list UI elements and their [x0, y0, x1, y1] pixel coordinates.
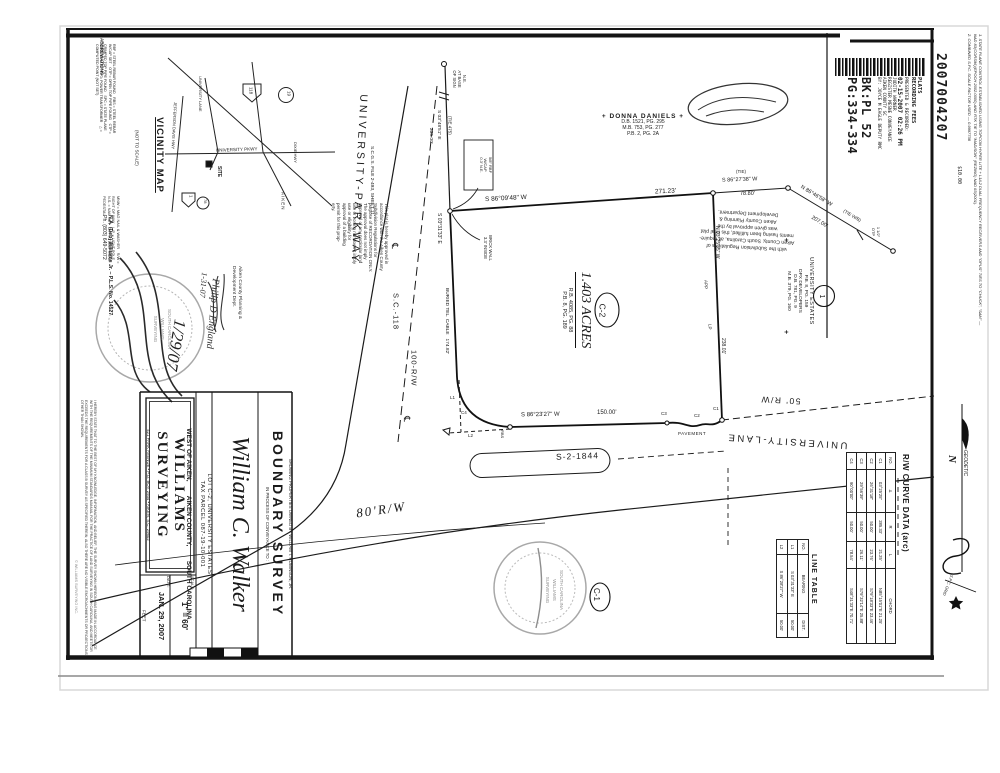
note-line: 3.3' INSIDE	[482, 224, 487, 272]
firm-name: WILLIAMS SURVEYING	[153, 403, 188, 567]
vicinity-site-marker	[206, 161, 212, 167]
adjoiner-ref: D.B. 781, PG. 9	[791, 248, 797, 334]
tie-bearing-parkway: S 03°48'51" E	[435, 110, 440, 162]
note-line: 1 1/2"	[875, 218, 880, 246]
table-row: C490°00'00" 50.00'78.54' S48°31'33"E 70.…	[847, 453, 857, 644]
stamp-line: PLATS	[916, 77, 922, 195]
vicinity-map-title: VICINITY MAP	[147, 114, 164, 196]
cross-icon: +	[602, 113, 607, 120]
adjoiner-name: UNIVERSITY ESTATES	[808, 248, 814, 334]
curve-table-title: R/W CURVE DATA (arc)	[901, 454, 909, 642]
table-row: C226°31'18" 50.00'23.76' S79°18'33"E 23.…	[866, 453, 876, 644]
seal-text-center: SOUTH CAROLINA WILLIAMS SURVEYING	[520, 562, 564, 618]
adjoiner-ref: P.B. 2, PG. 2A	[573, 132, 713, 138]
curve-table: NO. Δ R L CHORD C103°25'25" 285.33'21.25…	[846, 452, 896, 644]
route-78-label: 78	[203, 199, 207, 208]
geodetic-label: GEODETIC	[962, 450, 967, 500]
rebar-found-note: 5/8" RBF W/CAP 0.3' N.E.	[466, 142, 492, 188]
tie-distance-parkway: 235.00'	[427, 128, 432, 160]
survey-type-text: BOUNDARY SURVEY	[270, 393, 286, 655]
barcode	[835, 58, 925, 76]
firm-address: 421 PARK AVENUE • P.O. BOX 2934 • AIKEN,…	[146, 403, 151, 567]
centerline-symbol: ℄	[390, 243, 399, 253]
title-date-cell: DATE: JAN. 29, 2007	[147, 576, 170, 656]
cross-icon: +	[679, 113, 684, 120]
planner-signature-date: 1-31-07	[198, 272, 208, 298]
note-line: OF SIGN	[452, 62, 457, 96]
stamp-deputy: BY: JOYCE M EAGLE DEPUTY RMC	[875, 77, 880, 195]
showing-line: SHOWING PROPERTIES OWNED BY WILLIAM T. R…	[287, 393, 292, 655]
county-approval-stamp: with the Subdivision Regulations of Aike…	[685, 145, 812, 253]
col-header: NO.	[798, 540, 809, 555]
scale-label: SCALE:	[189, 576, 194, 656]
otp-note: 1 1/2" OTP	[864, 218, 880, 246]
surveyor-identity: N.A. (Deb) Williams Jr. – P.L.S. No. 145…	[95, 215, 112, 425]
parcel-lot-number: C-2	[598, 302, 607, 319]
recording-stamp: PLATS RECORDING FEES PRESENTED & RECORDE…	[826, 77, 922, 195]
parcel-area: 1.403 ACRES	[575, 272, 593, 349]
sign-base-note: N.E. AT BASE OF SIGN	[451, 62, 466, 96]
title-lot: LOT C-2, UNIVERSITY ESTATES TAX PARCEL 0…	[196, 393, 212, 655]
brick-wall-note: BRICK WALL 3.3' INSIDE	[477, 224, 492, 272]
curve-c3-label: C3	[661, 412, 667, 417]
site-label: SITE	[216, 166, 221, 192]
bearing-west-line: S 03°31'33" E	[436, 213, 441, 269]
title-firm: WILLIAMS SURVEYING 421 PARK AVENUE • P.O…	[151, 403, 191, 567]
note-1: 1. STATE PLANE CONTROL ESTABLISHED USING…	[973, 34, 982, 334]
tie1-distance: 78.80'	[740, 192, 755, 198]
table-row: C329°56'39" 50.00'26.11' S79°32'14"E 25.…	[856, 453, 866, 644]
approval-line: This plat is hereby approved in	[384, 203, 389, 361]
rbs-label: RBS	[500, 430, 504, 446]
curve-c1-label: C1	[713, 407, 719, 412]
seal-text-left: SOUTH CAROLINA WILLIAMS SURVEYING	[132, 304, 172, 354]
col-header: L	[886, 542, 896, 569]
distance-south-line: 150.00'	[597, 410, 617, 416]
lp-label: LP	[707, 324, 712, 338]
line-table: NO. BEARING DIST. L1 S 03°31'33" E 50.00…	[776, 539, 809, 638]
parcel-ref: R.B. 4085, PG. 88	[567, 262, 573, 358]
adjoiner-ref: P.B. 8, PG. 159	[802, 248, 808, 334]
surveyor-certification: I HEREBY STATE THAT TO THE BEST OF MY KN…	[75, 400, 97, 658]
line-table-title: LINE TABLE	[810, 554, 817, 618]
adjoiner-lot-number: 1	[818, 291, 825, 302]
document-number: 2007004207	[934, 53, 947, 175]
note-line: OTP	[871, 218, 876, 246]
table-row: C103°25'25" 285.33'21.25' N85°15'01"E 21…	[876, 453, 886, 644]
title-client: William C. Walker	[213, 393, 257, 655]
cross-icon: +	[782, 238, 789, 246]
approval-line: accordance with the Aiken County	[378, 203, 383, 361]
vicinity-not-to-scale: (NOT TO SCALE)	[134, 130, 139, 184]
adjoiner-name2: DPX DEVELOPERS	[797, 248, 803, 334]
page-number: PG:334-334	[844, 77, 858, 195]
star-icon	[949, 596, 963, 610]
north-label: N	[946, 455, 957, 471]
tie1-label: (TIE)	[736, 170, 746, 175]
note-buried-cable: BURIED TEL. CABLE 174.82'	[443, 288, 448, 380]
scale-value: 1" = 60'	[180, 576, 189, 656]
app-label: APP	[703, 280, 708, 298]
col-header: DIST.	[798, 614, 809, 638]
tie-label-parkway: (TIE 475)	[447, 116, 452, 150]
adjoiner-ref: M.B. 379, PG. 160	[786, 248, 792, 334]
date-value: JAN. 29, 2007	[157, 576, 166, 656]
approval-line: approval of a building	[341, 203, 346, 361]
title-survey-type: SHOWING PROPERTIES OWNED BY WILLIAM T. R…	[257, 393, 292, 655]
distance-north-line: 271.23'	[655, 188, 676, 196]
road-label-s2-1844: S-2-1844	[556, 451, 599, 461]
bearing-south-line: S 86°23'27" W	[521, 412, 560, 419]
note-2: 2. COMBINED S.P.C. SCALE FACTOR USED — 0…	[967, 34, 972, 334]
vicinity-roads	[165, 58, 335, 212]
surveyor-phone: Ph. (803) 649-5072	[100, 215, 106, 425]
note-line: 0.3' N.E.	[478, 142, 483, 188]
stamp-datetime: 02-15-2007 02:26 PM	[896, 77, 903, 195]
parcel-ref: P.B. 8, PG. 189	[560, 262, 566, 358]
route-1-label: 1	[188, 195, 193, 203]
line-l2-label: L2	[468, 434, 473, 439]
aiken-label: AIKEN	[280, 192, 285, 222]
route-19-label: 19	[286, 91, 291, 101]
curve-c2-label: C2	[694, 414, 700, 419]
line-l1-label: L1	[450, 396, 455, 401]
lot-c1-label: C-1	[592, 588, 600, 608]
conveyance-line: IN PROCESS OF CONVEYANCE TO :	[264, 393, 269, 655]
stamp-line: RECORDING FEES	[909, 77, 915, 195]
survey-notes: 1. STATE PLANE CONTROL ESTABLISHED USING…	[954, 34, 982, 334]
note-line: AT BASE	[456, 62, 461, 96]
centerline-symbol: ℄	[402, 416, 411, 426]
col-header: BEARING	[798, 555, 809, 614]
dept-line: Aiken County Planning &	[236, 266, 242, 322]
note-line: 5/8" RBF	[487, 142, 492, 188]
col-header: CHORD	[886, 569, 896, 644]
col-header: R	[886, 513, 896, 542]
abbreviations-col1: RBF = STEEL REBAR FOUND RBS = STEEL REBA…	[86, 44, 116, 144]
scanned-survey-plat: PLATS RECORDING FEES PRESENTED & RECORDE…	[0, 0, 1000, 773]
col-header: Δ	[886, 470, 896, 513]
table-row: L2 S 86°28'27" W 50.00'	[777, 540, 788, 638]
book-number: BK:PL 52	[858, 77, 872, 195]
adjoiner-north: + DONNA DANIELS + D.B. 1521, PG. 295 M.B…	[573, 113, 713, 138]
route-118-label: 118	[248, 87, 253, 99]
approval-line: Subdivision Regulations for	[373, 203, 378, 361]
vicinity-title-text: VICINITY MAP	[153, 114, 164, 196]
bearing-east-line: N 03°25'35" W	[714, 226, 719, 282]
file-note: S.C.G.S. FILE 2-493, SHEET 11.	[368, 146, 373, 244]
pavement-label: PAVEMENT	[678, 432, 706, 437]
table-row: L1 S 03°31'33" E 50.00'	[787, 540, 798, 638]
cross-icon: +	[782, 330, 789, 338]
parcel-label: 1.403 ACRES R.B. 4085, PG. 88 P.B. 8, PG…	[555, 262, 595, 358]
curve-c4-label: C4	[461, 411, 467, 416]
col-header: NO.	[886, 453, 896, 470]
feet-label: FEET	[141, 610, 146, 632]
distance-east-line: 238.01'	[720, 338, 725, 374]
road-label-sc118: S.C.-118	[392, 293, 400, 343]
tax-parcel-line: TAX PARCEL 087-19-10-001	[199, 393, 206, 655]
copyright: © WILLIAMS SURVEYING INC.	[73, 560, 77, 660]
road-label-university-lane: UNIVERSITY LANE	[198, 76, 202, 126]
title-scale-cell: SCALE: 1" = 60'	[171, 576, 194, 656]
planning-dept-label: Aiken County Planning & Development Dept…	[226, 266, 242, 322]
lot-line: LOT C-2, UNIVERSITY ESTATES	[205, 393, 212, 655]
adjoiner-east: UNIVERSITY ESTATES P.B. 8, PG. 159 DPX D…	[776, 248, 814, 334]
label-50-rw: 50' R/W	[760, 395, 801, 406]
date-label: DATE:	[165, 576, 170, 656]
stamp-line: PRESENTED & RECORDED:	[902, 77, 907, 195]
approval-line: permit for this prop-	[336, 203, 341, 361]
label-100-rw: 100-R/W	[410, 350, 418, 404]
client-name: William C. Walker	[225, 393, 253, 655]
road-label-dixie: DIXIE HWY	[293, 142, 297, 184]
